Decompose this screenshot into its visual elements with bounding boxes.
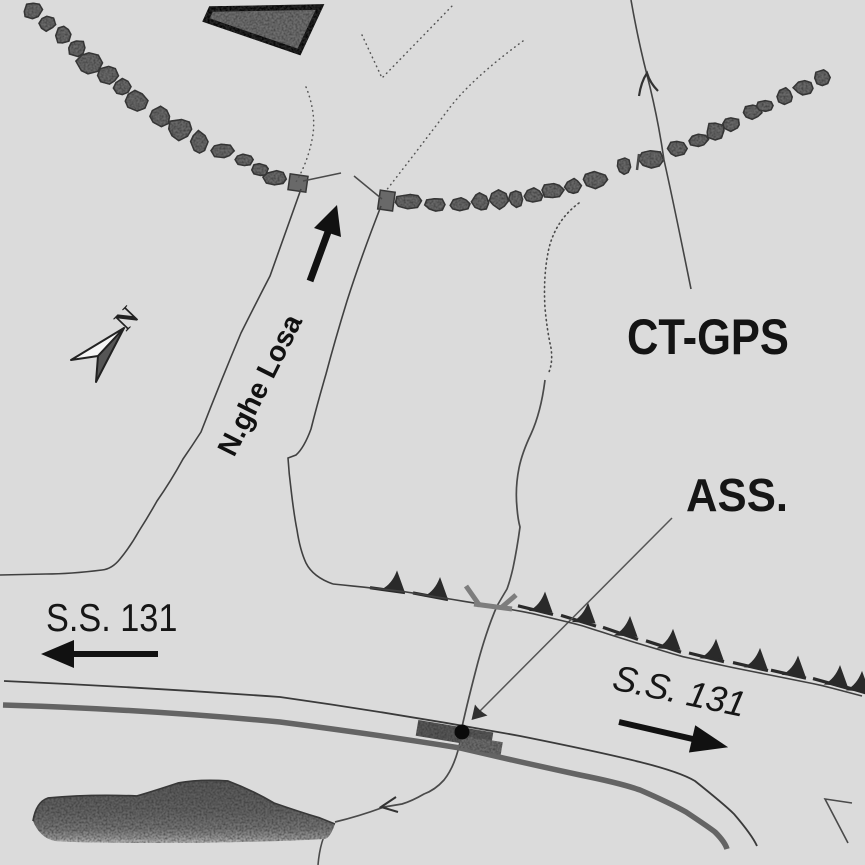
svg-text:CT-GPS: CT-GPS [627,309,789,364]
svg-text:ASS.: ASS. [686,469,788,521]
svg-text:S.S. 131: S.S. 131 [46,596,177,639]
